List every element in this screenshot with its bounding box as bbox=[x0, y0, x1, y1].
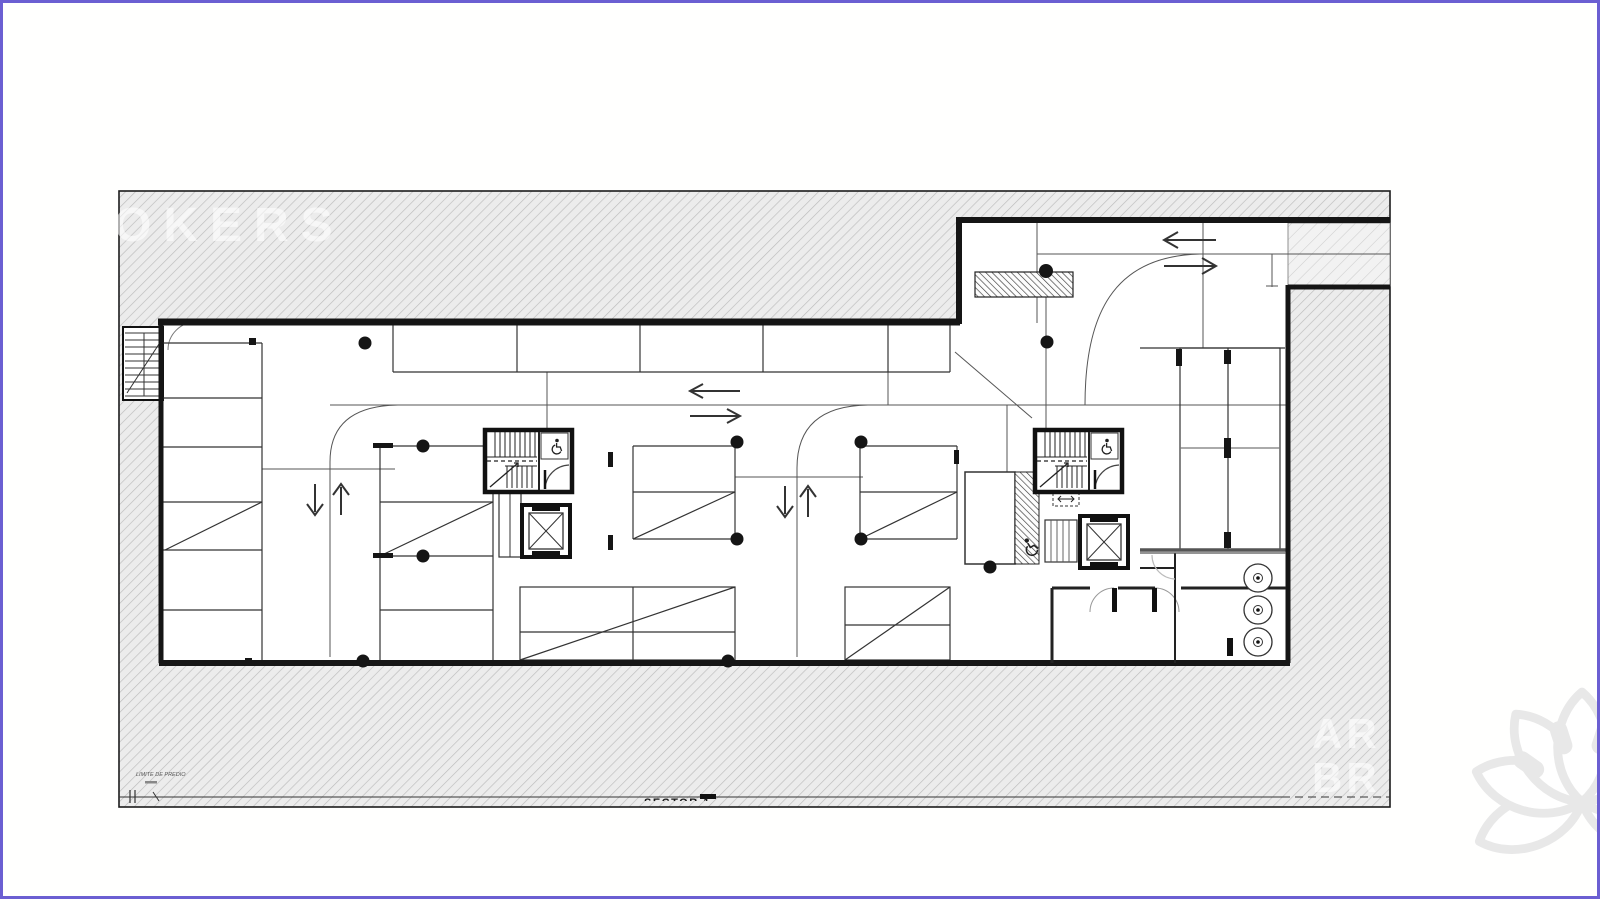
watermark-bottom-right-2: BR bbox=[1312, 754, 1381, 801]
door-leaf bbox=[1112, 588, 1117, 612]
elevator-b bbox=[1080, 516, 1128, 568]
watermark-bottom-right-1: AR bbox=[1312, 710, 1381, 757]
watermark-top-left: OKERS bbox=[114, 199, 345, 252]
page: OKERS AR BR bbox=[0, 0, 1600, 899]
stair-core-a bbox=[485, 430, 572, 492]
entry-ramp-strip bbox=[975, 272, 1073, 297]
elevator-a bbox=[522, 505, 570, 557]
flower-logo bbox=[1470, 692, 1600, 864]
stair-core-b bbox=[1035, 430, 1122, 492]
floor-plan-canvas: OKERS AR BR bbox=[0, 0, 1600, 899]
ventilation-circles bbox=[1244, 564, 1272, 656]
property-line-label: LIMITE DE PREDIO bbox=[136, 772, 186, 778]
door-leaf bbox=[1152, 588, 1157, 612]
storage-room bbox=[965, 472, 1015, 564]
